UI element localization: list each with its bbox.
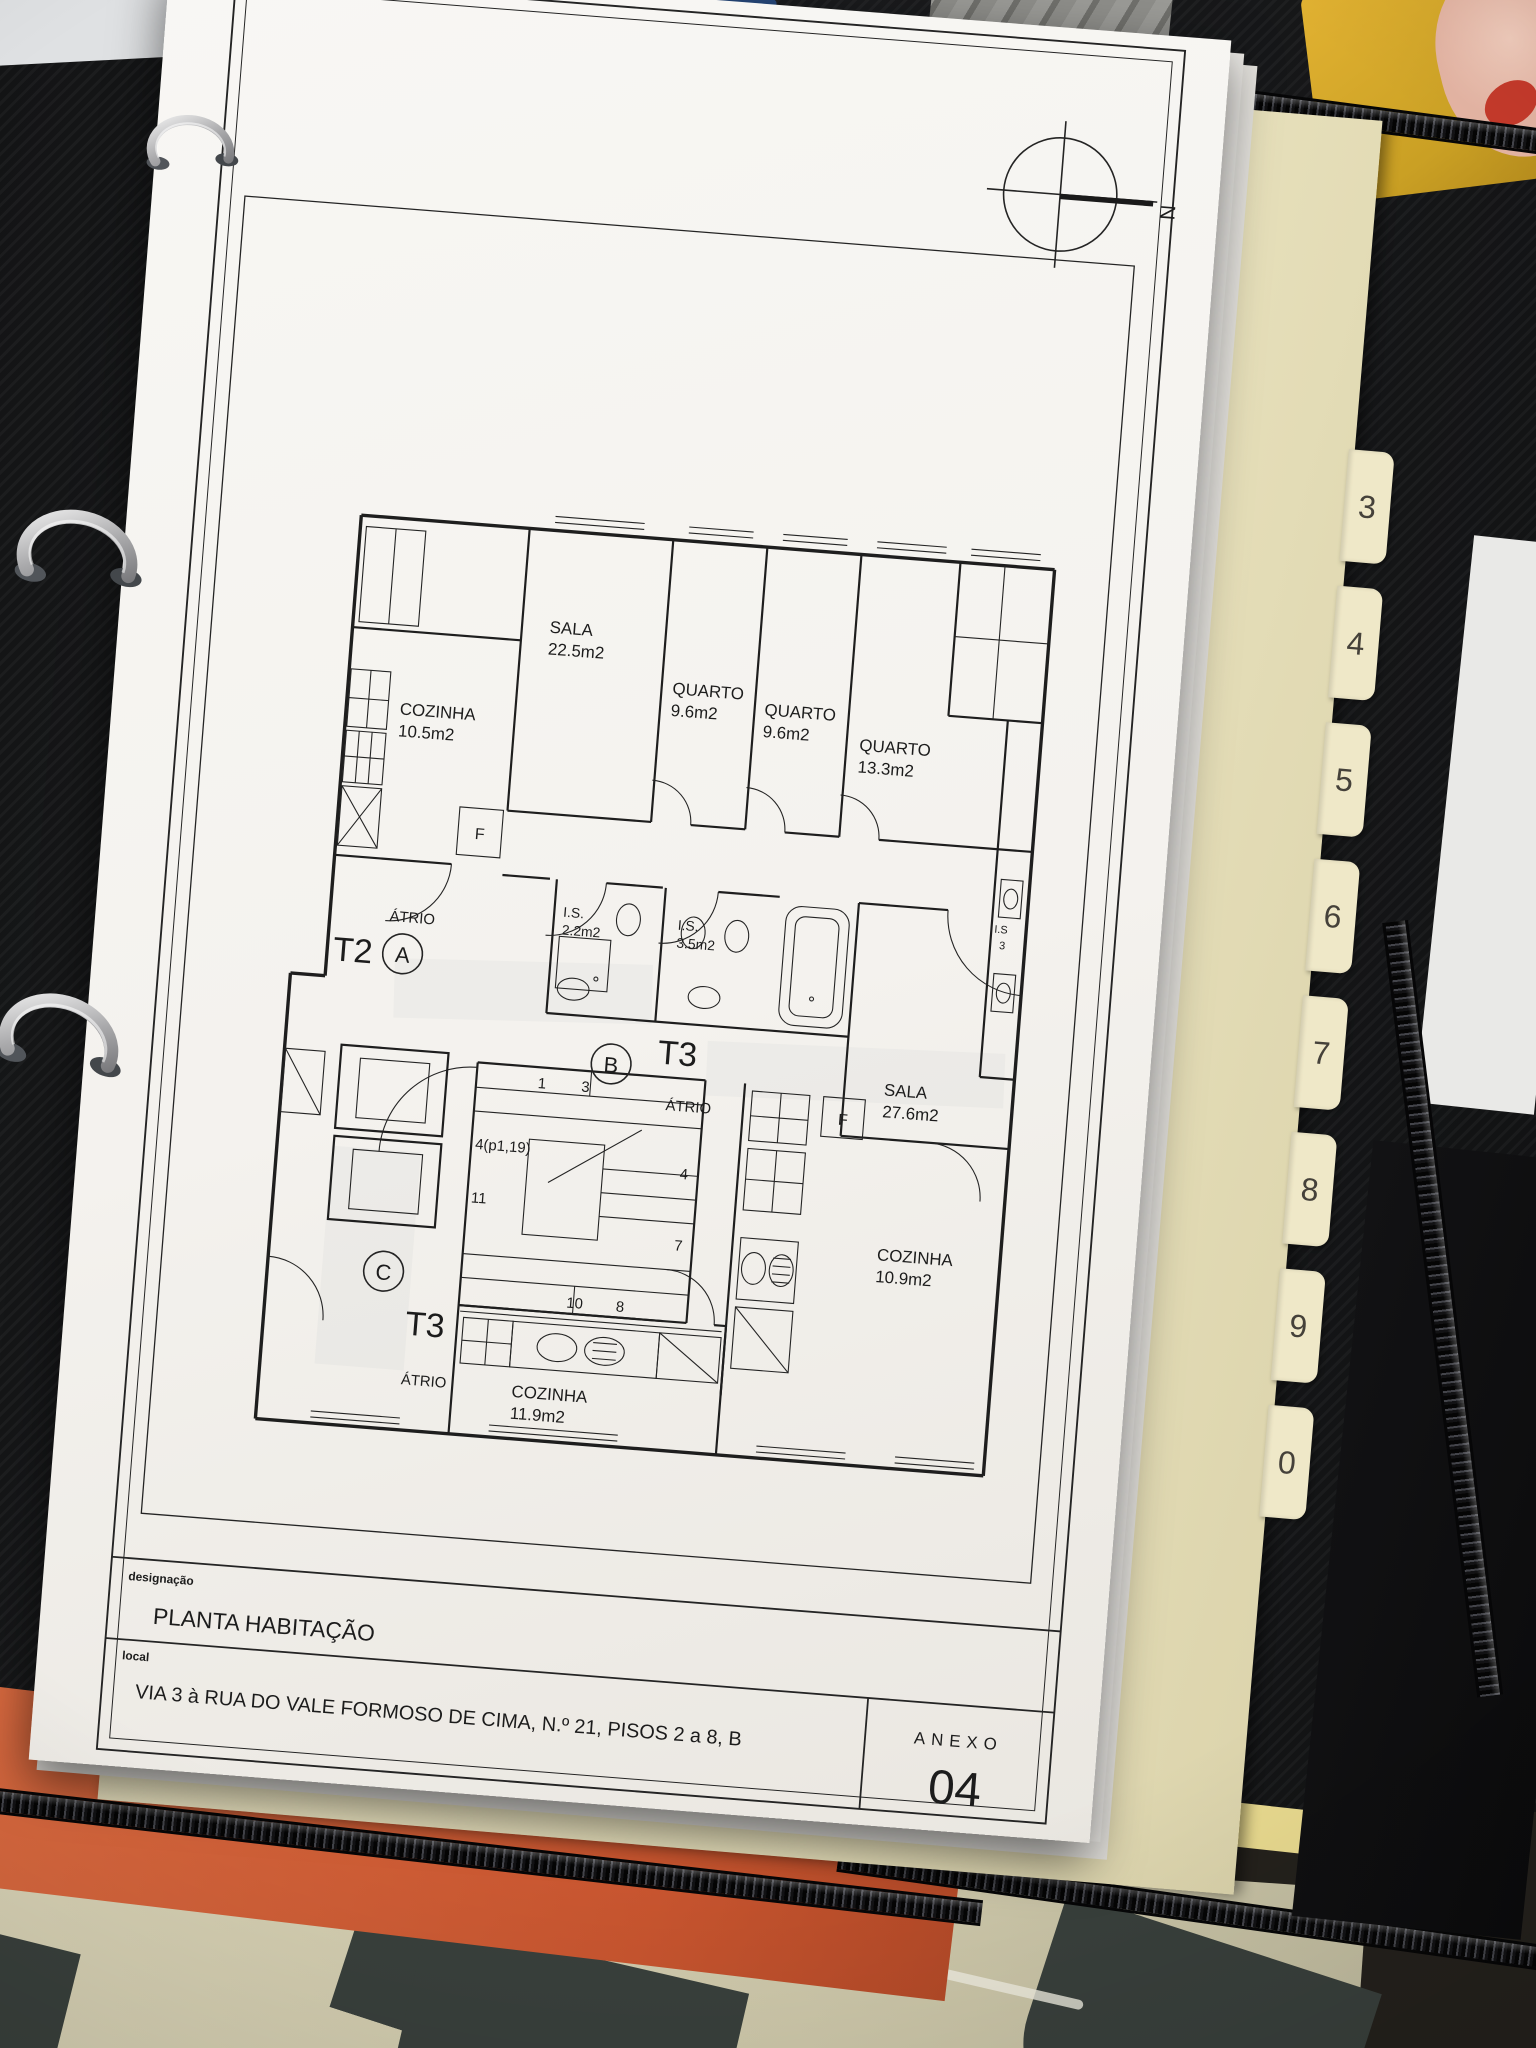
unit-letter: B: [603, 1052, 619, 1078]
room-label: QUARTO: [859, 736, 932, 761]
room-label: ÁTRIO: [400, 1371, 447, 1392]
north-label: N: [1155, 204, 1179, 221]
tab-number: 6: [1322, 897, 1343, 935]
room-label: SALA: [549, 618, 594, 640]
room-area: 3: [999, 940, 1006, 952]
binder-tab-4: 4: [1328, 586, 1383, 701]
drawing-title: PLANTA HABITAÇÃO: [152, 1603, 376, 1646]
local-field-label: local: [122, 1648, 150, 1664]
kitchen-b-fixtures: [731, 1091, 810, 1373]
f-label: F: [837, 1112, 848, 1130]
stair-number: 10: [566, 1296, 584, 1313]
unit-type: T3: [656, 1034, 698, 1075]
stair-number: 7: [674, 1238, 684, 1255]
stair-number: 4(p1,19): [475, 1137, 532, 1157]
binder-tab-7: 7: [1294, 995, 1349, 1110]
floor-plan-sheet: N: [29, 0, 1232, 1843]
tab-number: 7: [1311, 1034, 1332, 1072]
binder-tab-6: 6: [1305, 859, 1360, 974]
binder-tab-9: 9: [1271, 1268, 1326, 1383]
room-label: I.S: [994, 924, 1008, 937]
room-area: 22.5m2: [547, 639, 605, 662]
room-area: 9.6m2: [670, 701, 718, 724]
room-label: ÁTRIO: [665, 1097, 712, 1118]
tab-number: 0: [1276, 1443, 1297, 1481]
unit-letter: C: [375, 1259, 393, 1285]
room-label: SALA: [883, 1080, 928, 1102]
room-area: 10.9m2: [875, 1267, 933, 1290]
show-through-mark: [393, 958, 653, 1024]
room-area: 13.3m2: [857, 757, 915, 780]
unit-type: T3: [404, 1305, 446, 1346]
binder-tab-10: 0: [1259, 1405, 1314, 1520]
stair-step-numbers: 1 3 4(p1,19) 4 11 7 10 8: [463, 1072, 695, 1321]
stair-number: 8: [615, 1299, 625, 1316]
room-label: QUARTO: [672, 679, 745, 704]
terrace-and-kitchen-a-fixtures: [337, 526, 425, 850]
room-area: 27.6m2: [882, 1102, 940, 1125]
binder-tab-5: 5: [1317, 722, 1372, 837]
binder-tab-3: 3: [1340, 449, 1395, 564]
photo-of-binder-with-floor-plan: Lundi Montag Lunes Ma Di M di ay 3: [0, 0, 1536, 2048]
unit-type: T2: [332, 930, 374, 971]
stair-number: 4: [679, 1167, 689, 1184]
show-through-mark: [705, 1041, 1005, 1109]
room-label: ÁTRIO: [389, 908, 436, 929]
room-label: I.S.: [677, 917, 699, 935]
calendar-numeral-shape: [0, 1918, 81, 2048]
room-label: COZINHA: [511, 1382, 589, 1407]
tab-number: 3: [1357, 488, 1378, 526]
stair-number: 11: [470, 1190, 487, 1207]
stair-number: 3: [581, 1079, 591, 1096]
room-area: 9.6m2: [762, 722, 810, 745]
room-label: QUARTO: [764, 700, 837, 725]
tab-number: 4: [1345, 624, 1366, 662]
room-label: I.S.: [563, 904, 585, 922]
tab-number: 5: [1334, 761, 1355, 799]
anexo-label: ANEXO: [913, 1728, 1003, 1754]
anexo-number: 04: [926, 1760, 983, 1817]
binder-tab-8: 8: [1282, 1132, 1337, 1247]
tab-number: 9: [1288, 1307, 1309, 1345]
room-label: COZINHA: [399, 699, 477, 724]
stair-number: 1: [537, 1076, 547, 1093]
room-area: 2.2m2: [561, 922, 601, 941]
room-labels: SALA 22.5m2 QUARTO 9.6m2 QUARTO 9.6m2 QU…: [345, 606, 1030, 1458]
binder-ring: [134, 100, 252, 193]
room-label: COZINHA: [876, 1245, 954, 1270]
f-label: F: [474, 826, 485, 844]
room-area: 11.9m2: [509, 1404, 565, 1427]
tab-number: 8: [1299, 1170, 1320, 1208]
designacao-field-label: designação: [128, 1569, 194, 1588]
unit-letter: A: [394, 942, 411, 968]
site-address: VIA 3 à RUA DO VALE FORMOSO DE CIMA, N.º…: [134, 1681, 742, 1751]
sheet-border: [97, 0, 1185, 1824]
drawing-sheet-page: N: [29, 0, 1232, 1843]
north-compass-icon: N: [981, 115, 1185, 277]
room-area: 10.5m2: [397, 721, 455, 744]
room-area: 3.5m2: [676, 935, 716, 954]
